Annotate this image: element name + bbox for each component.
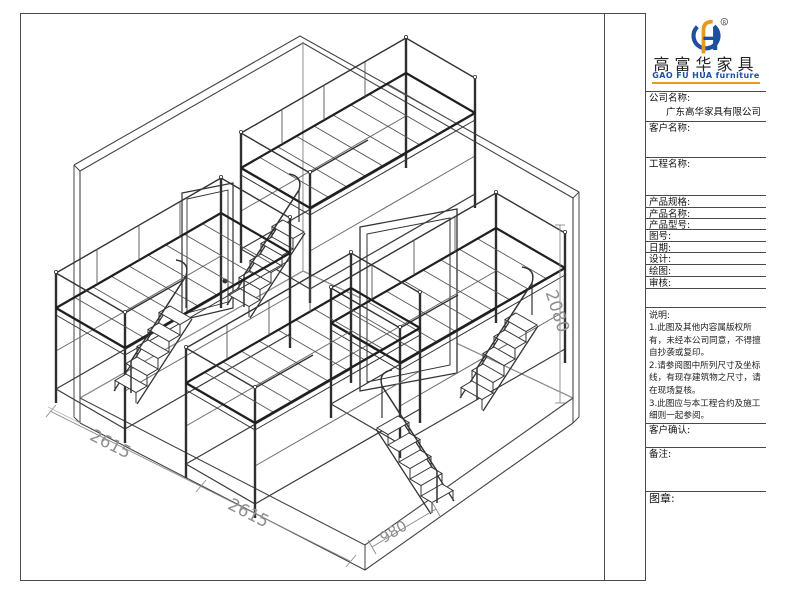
field-company-label: 公司名称: (649, 93, 690, 104)
field-date-label: 日期: (649, 243, 671, 253)
stairs-front (376, 370, 454, 514)
field-project-label: 工程名称: (649, 159, 690, 170)
dim-label-depth-a: 2615 (86, 426, 134, 463)
drawing-sheet: 2615 2615 980 2080 R 高富华家具 (0, 0, 800, 600)
field-product-name: 产品名称: (646, 208, 766, 219)
notes-title: 说明: (649, 310, 763, 322)
field-company: 公司名称: 广东高华家具有限公司 (646, 92, 766, 122)
field-review-label: 审核: (649, 278, 671, 289)
field-customer-label: 客户名称: (649, 123, 690, 134)
field-draft: 绘图: (646, 265, 766, 277)
logo-chinese-name: 高富华家具 (649, 59, 763, 70)
door-frame (360, 209, 457, 391)
field-date: 日期: (646, 242, 766, 253)
field-project-value (649, 170, 763, 173)
field-company-value: 广东高华家具有限公司 (649, 104, 763, 118)
field-product-name-label: 产品名称: (649, 209, 690, 219)
field-drawing-no-label: 图号: (649, 231, 671, 242)
note-line-1: 1.此图及其他内容属版权所有，未经本公司同意，不得擅自抄袭或复印。 (649, 322, 763, 360)
field-model: 产品型号: (646, 219, 766, 230)
logo-english-name: GAO FU HUA furniture (652, 70, 759, 84)
field-review: 审核: (646, 277, 766, 289)
dim-label-stair-width: 980 (377, 517, 411, 547)
field-spec: 产品规格: (646, 196, 766, 208)
field-project: 工程名称: (646, 158, 766, 196)
frame-divider-line (604, 13, 605, 581)
floor-slab (74, 393, 579, 570)
field-remark: 备注: (646, 448, 766, 492)
field-remark-label: 备注: (649, 449, 671, 460)
field-model-label: 产品型号: (649, 220, 690, 230)
company-logo: R 高富华家具 GAO FU HUA furniture (646, 13, 766, 92)
notes-section: 说明: 1.此图及其他内容属版权所有，未经本公司同意，不得擅自抄袭或复印。 2.… (646, 308, 766, 424)
field-customer-confirm: 客户确认: (646, 424, 766, 448)
room-drawing-svg: 2615 2615 980 2080 (20, 13, 604, 581)
field-customer: 客户名称: (646, 122, 766, 158)
field-seal: 图章: (646, 492, 766, 582)
field-seal-label: 图章: (649, 492, 675, 505)
field-design-label: 设计: (649, 254, 671, 265)
title-block: R 高富华家具 GAO FU HUA furniture 公司名称: 广东高华家… (645, 13, 766, 581)
note-line-2: 2.请参阅图中所列尺寸及坐标线，有现存建筑物之尺寸，请在现场复核。 (649, 360, 763, 398)
registered-mark: R (723, 20, 727, 26)
logo-monogram-icon: R (678, 15, 734, 55)
spacer-row (646, 289, 766, 308)
field-customer-value (649, 134, 763, 137)
field-design: 设计: (646, 253, 766, 265)
field-drawing-no: 图号: (646, 230, 766, 242)
isometric-drawing: 2615 2615 980 2080 (20, 13, 604, 581)
field-customer-confirm-label: 客户确认: (649, 425, 690, 436)
field-spec-label: 产品规格: (649, 197, 690, 208)
field-draft-label: 绘图: (649, 266, 671, 277)
note-line-3: 3.此图应与本工程合约及施工细则一起参阅。 (649, 398, 763, 423)
